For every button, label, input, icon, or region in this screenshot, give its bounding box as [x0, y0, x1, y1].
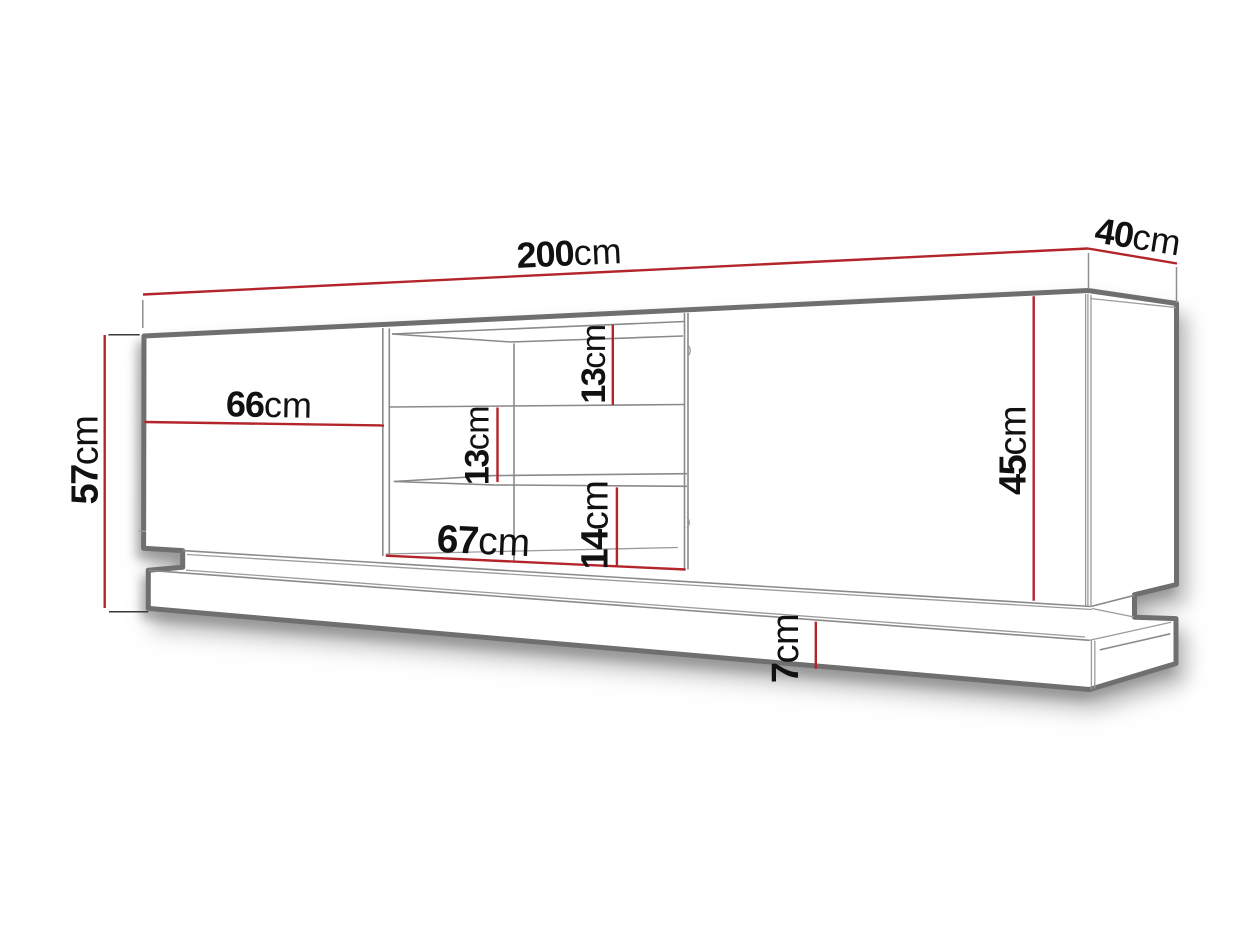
svg-text:14cm: 14cm [575, 481, 617, 570]
svg-text:45cm: 45cm [993, 406, 1035, 495]
svg-text:13cm: 13cm [459, 406, 497, 485]
svg-text:7cm: 7cm [765, 614, 807, 683]
svg-text:57cm: 57cm [65, 416, 107, 505]
svg-text:66cm: 66cm [226, 383, 313, 425]
svg-text:200cm: 200cm [516, 230, 623, 276]
svg-text:67cm: 67cm [436, 517, 531, 564]
svg-text:13cm: 13cm [575, 324, 613, 403]
